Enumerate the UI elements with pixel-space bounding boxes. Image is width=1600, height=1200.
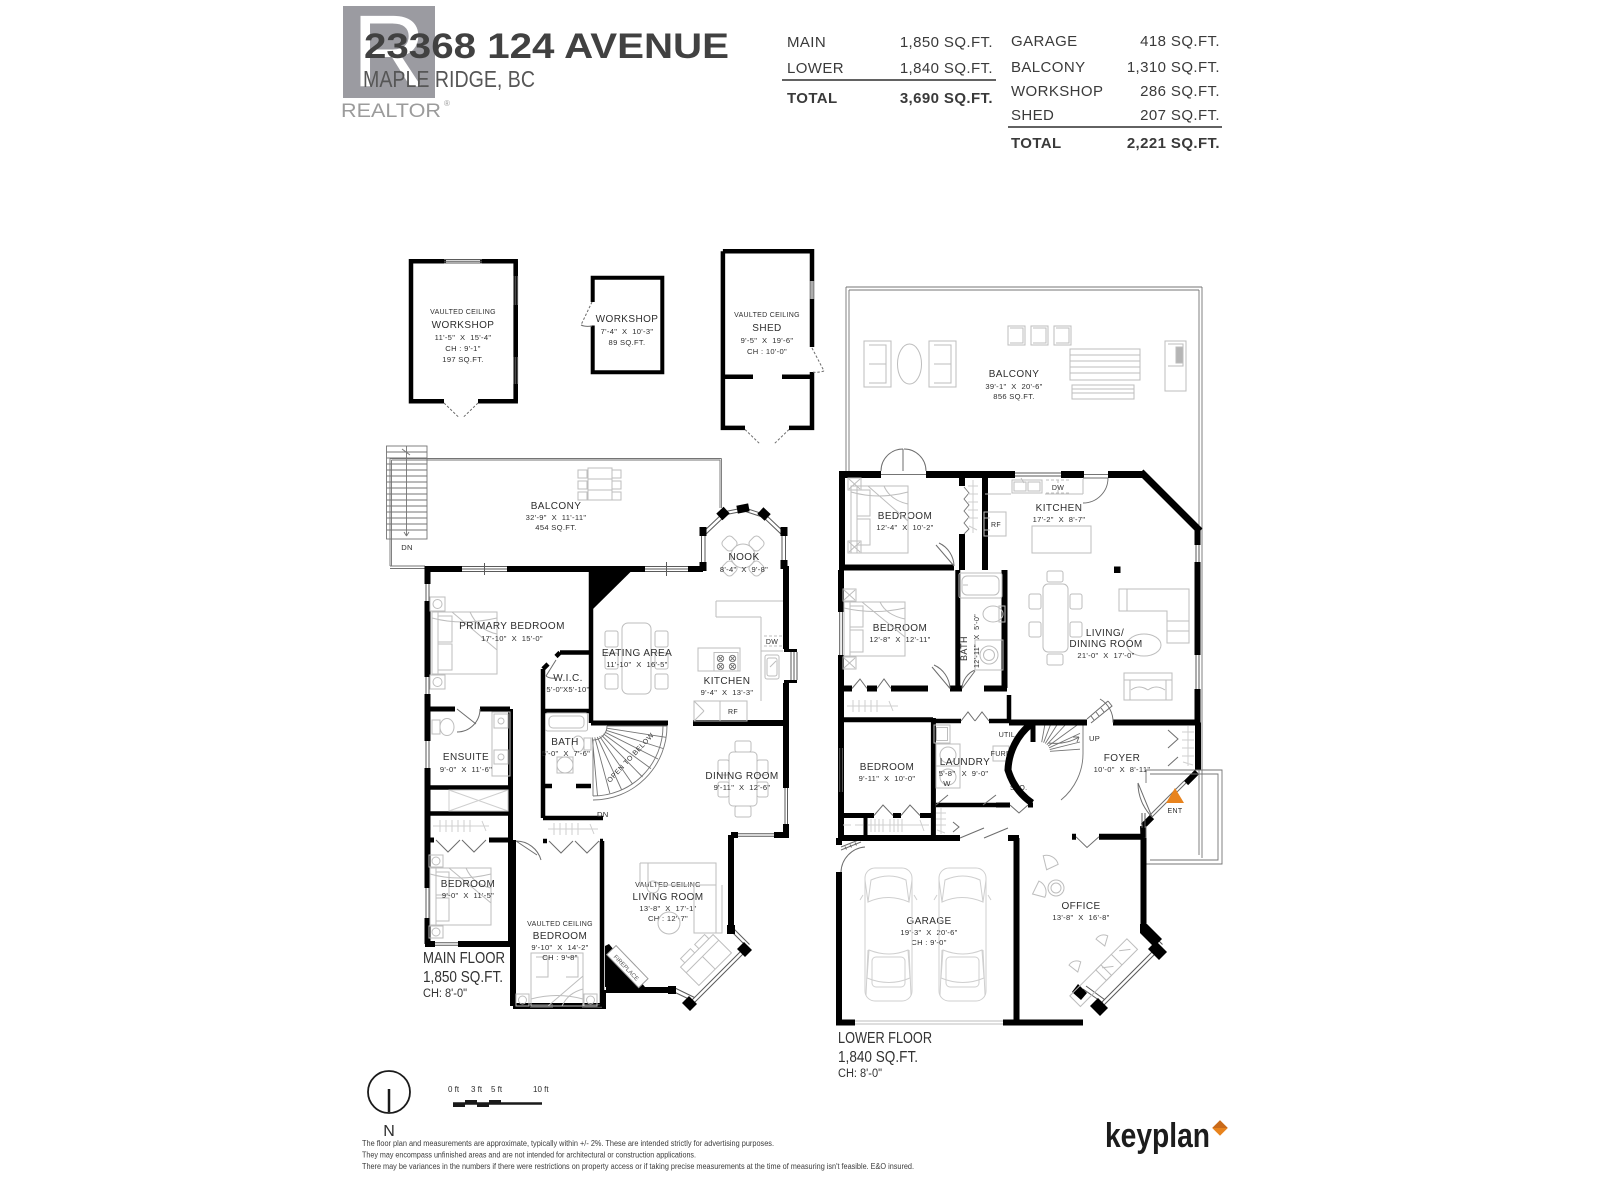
svg-text:32'-9" X 11'-11": 32'-9" X 11'-11" (526, 513, 587, 522)
svg-text:REALTOR: REALTOR (341, 101, 441, 122)
svg-text:®: ® (444, 99, 450, 108)
svg-text:DINING ROOM: DINING ROOM (705, 771, 778, 782)
svg-text:PRIMARY BEDROOM: PRIMARY BEDROOM (459, 621, 565, 632)
svg-text:MAPLE RIDGE, BC: MAPLE RIDGE, BC (363, 66, 535, 92)
svg-text:1,850 SQ.FT.: 1,850 SQ.FT. (423, 969, 503, 986)
svg-text:11'-5" X 15'-4": 11'-5" X 15'-4" (435, 333, 492, 342)
svg-text:KITCHEN: KITCHEN (1036, 503, 1083, 514)
svg-text:0 ft: 0 ft (448, 1085, 460, 1094)
svg-text:VAULTED CEILING: VAULTED CEILING (734, 312, 800, 319)
svg-text:LOWER: LOWER (787, 60, 844, 77)
svg-text:207 SQ.FT.: 207 SQ.FT. (1140, 107, 1220, 124)
svg-text:SHED: SHED (1011, 107, 1054, 124)
svg-text:9'-11" X 10'-0": 9'-11" X 10'-0" (859, 774, 916, 783)
svg-text:DN: DN (597, 810, 609, 819)
svg-text:9'-10" X 14'-2": 9'-10" X 14'-2" (531, 943, 588, 952)
svg-text:BEDROOM: BEDROOM (533, 931, 587, 942)
svg-text:GARAGE: GARAGE (1011, 33, 1078, 50)
svg-text:W.I.C.: W.I.C. (553, 673, 583, 684)
svg-text:CH : 9'-8": CH : 9'-8" (542, 953, 577, 962)
svg-text:NOOK: NOOK (728, 552, 759, 563)
svg-text:13'-8" X 16'-8": 13'-8" X 16'-8" (1052, 913, 1109, 922)
svg-text:GARAGE: GARAGE (906, 916, 951, 927)
svg-text:X 9'-0": X 9'-0" (962, 769, 989, 778)
svg-text:CH : 12'-7": CH : 12'-7" (648, 914, 688, 923)
svg-text:TOTAL: TOTAL (1011, 135, 1062, 152)
svg-text:197 SQ.FT.: 197 SQ.FT. (442, 355, 483, 364)
svg-text:39'-1" X 20'-6": 39'-1" X 20'-6" (985, 382, 1042, 391)
svg-text:7'-4" X 10'-3": 7'-4" X 10'-3" (601, 327, 654, 336)
svg-text:DINING ROOM: DINING ROOM (1069, 639, 1142, 650)
svg-text:LOWER FLOOR: LOWER FLOOR (838, 1030, 932, 1047)
svg-text:RF: RF (728, 709, 738, 716)
svg-text:BEDROOM: BEDROOM (860, 762, 914, 773)
svg-text:SHED: SHED (752, 323, 781, 334)
svg-text:EATING AREA: EATING AREA (602, 648, 672, 659)
svg-text:WORKSHOP: WORKSHOP (432, 320, 495, 331)
svg-text:LAUNDRY: LAUNDRY (940, 757, 990, 768)
svg-text:OFFICE: OFFICE (1061, 901, 1100, 912)
svg-text:LIVING/: LIVING/ (1086, 628, 1124, 639)
svg-text:5'-0"X5'-10": 5'-0"X5'-10" (546, 685, 589, 694)
svg-text:1,310 SQ.FT.: 1,310 SQ.FT. (1127, 59, 1220, 76)
svg-text:9'-11" X 12'-6": 9'-11" X 12'-6" (714, 783, 771, 792)
svg-text:WORKSHOP: WORKSHOP (1011, 83, 1103, 100)
svg-text:WORKSHOP: WORKSHOP (596, 314, 659, 325)
svg-text:5'-0" X 7'-6": 5'-0" X 7'-6" (542, 749, 590, 758)
svg-text:ENT: ENT (1168, 808, 1183, 815)
svg-text:TOTAL: TOTAL (787, 90, 838, 107)
svg-text:8'-4" X 9'-8": 8'-4" X 9'-8" (720, 565, 768, 574)
svg-text:BATH: BATH (959, 636, 969, 661)
svg-text:N: N (383, 1123, 395, 1140)
svg-text:9'-5" X 19'-6": 9'-5" X 19'-6" (741, 336, 794, 345)
svg-text:10'-0" X 8'-11": 10'-0" X 8'-11" (1094, 765, 1151, 774)
svg-text:1,840 SQ.FT.: 1,840 SQ.FT. (900, 60, 993, 77)
svg-text:The floor plan and measurement: The floor plan and measurements are appr… (362, 1139, 774, 1148)
svg-text:9'-4" X 13'-3": 9'-4" X 13'-3" (701, 688, 754, 697)
svg-text:BALCONY: BALCONY (1011, 59, 1086, 76)
svg-text:RF: RF (991, 522, 1001, 529)
svg-text:LIVING ROOM: LIVING ROOM (632, 892, 703, 903)
svg-text:DW: DW (766, 639, 778, 646)
svg-text:CH : 9'-1": CH : 9'-1" (445, 344, 480, 353)
svg-text:21'-0" X 17'-0": 21'-0" X 17'-0" (1077, 651, 1134, 660)
svg-text:1,840 SQ.FT.: 1,840 SQ.FT. (838, 1049, 918, 1066)
svg-text:CH : 9'-0": CH : 9'-0" (911, 938, 946, 947)
svg-text:23368 124 AVENUE: 23368 124 AVENUE (364, 27, 729, 66)
svg-text:There may be variances in the: There may be variances in the numbers if… (362, 1162, 914, 1171)
svg-text:89 SQ.FT.: 89 SQ.FT. (609, 338, 646, 347)
svg-text:418 SQ.FT.: 418 SQ.FT. (1140, 33, 1220, 50)
svg-text:3 ft: 3 ft (471, 1085, 483, 1094)
svg-text:FOYER: FOYER (1104, 753, 1140, 764)
svg-text:BEDROOM: BEDROOM (878, 511, 932, 522)
svg-text:keyplan: keyplan (1105, 1117, 1210, 1155)
svg-text:17'-2" X 8'-7": 17'-2" X 8'-7" (1033, 515, 1086, 524)
svg-text:They may encompass unfinished: They may encompass unfinished areas and … (362, 1151, 696, 1160)
svg-text:CH: 8'-0": CH: 8'-0" (423, 988, 467, 1000)
svg-text:MAIN FLOOR: MAIN FLOOR (423, 950, 505, 967)
svg-text:12'-11" X 5'-0": 12'-11" X 5'-0" (972, 614, 981, 668)
svg-text:12'-8" X 12'-11": 12'-8" X 12'-11" (869, 635, 930, 644)
svg-text:MAIN: MAIN (787, 34, 826, 51)
svg-text:BALCONY: BALCONY (989, 369, 1040, 380)
svg-text:9'-0" X 11'-6": 9'-0" X 11'-6" (440, 765, 492, 774)
svg-text:856 SQ.FT.: 856 SQ.FT. (993, 392, 1034, 401)
svg-text:DN: DN (401, 543, 413, 552)
svg-text:5'-8": 5'-8" (939, 769, 956, 778)
svg-text:CH: 8'-0": CH: 8'-0" (838, 1068, 882, 1080)
svg-text:10 ft: 10 ft (533, 1085, 549, 1094)
svg-text:VAULTED CEILING: VAULTED CEILING (430, 309, 496, 316)
svg-text:286 SQ.FT.: 286 SQ.FT. (1140, 83, 1220, 100)
svg-text:5 ft: 5 ft (491, 1085, 503, 1094)
svg-text:W: W (943, 779, 951, 788)
svg-text:19'-3" X 20'-6": 19'-3" X 20'-6" (900, 928, 957, 937)
svg-text:3,690 SQ.FT.: 3,690 SQ.FT. (900, 90, 993, 107)
svg-text:9'-0" X 11'-5": 9'-0" X 11'-5" (442, 891, 494, 900)
svg-text:OPEN TO BELOW: OPEN TO BELOW (606, 732, 655, 784)
svg-text:VAULTED CEILING: VAULTED CEILING (527, 921, 593, 928)
svg-text:2,221 SQ.FT.: 2,221 SQ.FT. (1127, 135, 1220, 152)
svg-text:BEDROOM: BEDROOM (441, 879, 495, 890)
svg-text:CH : 10'-0": CH : 10'-0" (747, 347, 787, 356)
svg-text:KITCHEN: KITCHEN (704, 676, 751, 687)
svg-text:ENSUITE: ENSUITE (443, 752, 489, 763)
svg-text:454 SQ.FT.: 454 SQ.FT. (535, 523, 576, 532)
svg-text:17'-10" X 15'-0": 17'-10" X 15'-0" (481, 634, 543, 643)
svg-text:12'-4" X 10'-2": 12'-4" X 10'-2" (876, 523, 933, 532)
svg-text:DW: DW (1052, 485, 1064, 492)
svg-text:BALCONY: BALCONY (531, 501, 582, 512)
svg-text:1,850 SQ.FT.: 1,850 SQ.FT. (900, 34, 993, 51)
svg-text:UP: UP (1089, 734, 1100, 743)
svg-text:BATH: BATH (551, 737, 579, 748)
svg-text:11'-10" X 16'-5": 11'-10" X 16'-5" (606, 660, 667, 669)
